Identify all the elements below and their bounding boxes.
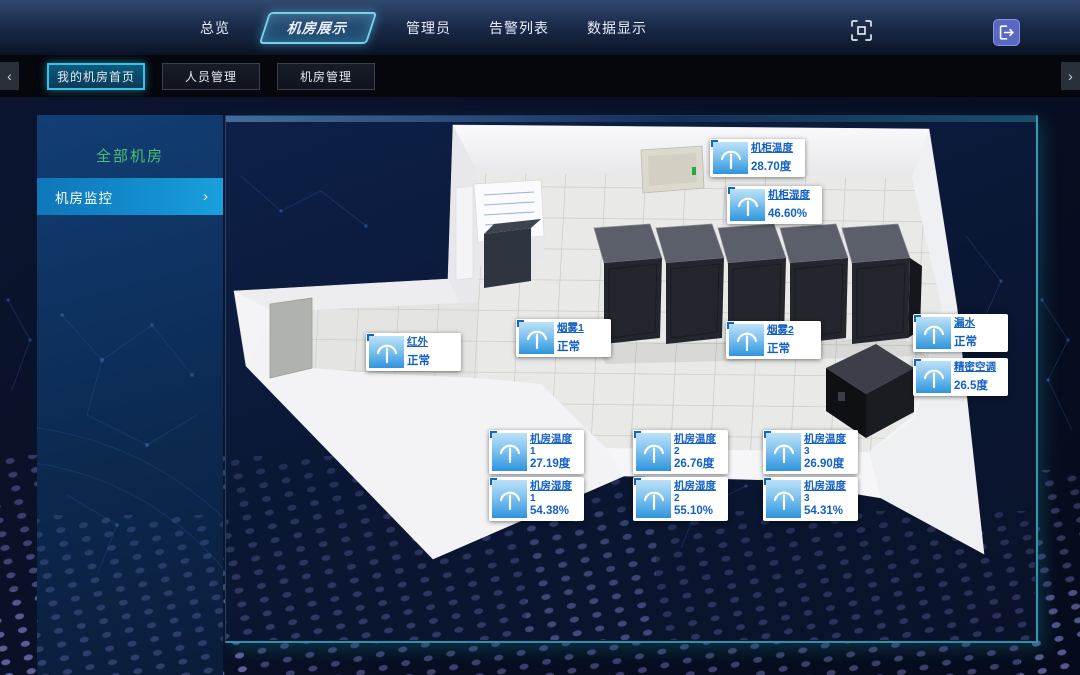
sensor-label-room-temp-3[interactable]: 机房温度 3 26.90度 xyxy=(763,430,858,474)
sensor-value: 26.90度 xyxy=(804,458,856,471)
chevron-right-icon: › xyxy=(203,188,223,205)
sensor-label-room-temp-1[interactable]: 机房温度 1 27.19度 xyxy=(489,430,584,474)
sensor-index: 3 xyxy=(804,447,856,457)
gauge-icon xyxy=(492,433,527,471)
sidebar-title: 全部机房 xyxy=(37,145,223,166)
sensor-title: 精密空调 xyxy=(954,361,1006,373)
sensor-label-cabinet-humidity[interactable]: 机柜湿度 46.60% xyxy=(727,186,822,224)
nav-item-alarm-list[interactable]: 告警列表 xyxy=(485,12,553,44)
network-cabinet xyxy=(456,180,544,288)
sensor-index: 2 xyxy=(674,447,726,457)
sensor-value: 26.5度 xyxy=(954,380,1006,393)
sensor-value: 27.19度 xyxy=(530,458,582,471)
tabs-scroll-left-button[interactable]: ‹ xyxy=(0,62,19,90)
sensor-label-room-temp-2[interactable]: 机房温度 2 26.76度 xyxy=(633,430,728,474)
top-navigation-bar: 总览 机房展示 管理员 告警列表 数据显示 xyxy=(0,0,1080,56)
nav-item-data-display[interactable]: 数据显示 xyxy=(583,12,651,44)
sensor-title: 机房湿度 xyxy=(530,480,582,492)
fullscreen-button[interactable] xyxy=(850,19,873,42)
exit-button[interactable] xyxy=(993,19,1020,46)
gauge-icon xyxy=(916,361,951,393)
fullscreen-icon xyxy=(850,19,873,42)
sensor-value: 55.10% xyxy=(674,505,726,518)
workspace-tab-row: ‹ 我的机房首页 人员管理 机房管理 › xyxy=(0,55,1080,97)
sensor-value: 54.38% xyxy=(530,505,582,518)
sensor-value: 46.60% xyxy=(768,208,820,221)
tab-personnel-management[interactable]: 人员管理 xyxy=(162,63,260,90)
gauge-icon xyxy=(730,189,765,221)
sensor-index: 3 xyxy=(804,494,856,504)
sensor-index: 2 xyxy=(674,494,726,504)
sensor-title: 机柜温度 xyxy=(751,142,803,154)
sensor-title: 漏水 xyxy=(954,317,1006,329)
top-nav-menu: 总览 机房展示 管理员 告警列表 数据显示 xyxy=(196,0,651,55)
sensor-label-precision-ac[interactable]: 精密空调 26.5度 xyxy=(913,358,1008,396)
sensor-title: 烟雾2 xyxy=(767,324,819,336)
gauge-icon xyxy=(713,142,748,174)
sensor-index: 1 xyxy=(530,494,582,504)
gauge-icon xyxy=(636,480,671,518)
room-door xyxy=(270,298,312,378)
sensor-value: 28.70度 xyxy=(751,161,803,174)
tab-my-room-home[interactable]: 我的机房首页 xyxy=(47,63,145,90)
sensor-title: 烟雾1 xyxy=(557,322,609,334)
gauge-icon xyxy=(766,433,801,471)
sensor-index: 1 xyxy=(530,447,582,457)
nav-item-room-display[interactable]: 机房展示 xyxy=(259,12,377,44)
tab-room-management[interactable]: 机房管理 xyxy=(277,63,375,90)
sensor-value: 54.31% xyxy=(804,505,856,518)
sensor-label-room-humidity-2[interactable]: 机房湿度 2 55.10% xyxy=(633,477,728,521)
sensor-title: 红外 xyxy=(407,336,459,348)
sensor-label-smoke-1[interactable]: 烟雾1 正常 xyxy=(516,319,611,357)
gauge-icon xyxy=(519,322,554,354)
gauge-icon xyxy=(369,336,404,368)
sidebar-item-label: 机房监控 xyxy=(37,187,203,207)
sensor-label-room-humidity-1[interactable]: 机房湿度 1 54.38% xyxy=(489,477,584,521)
nav-item-admin[interactable]: 管理员 xyxy=(402,12,455,44)
sensor-value: 正常 xyxy=(557,341,609,354)
gauge-icon xyxy=(729,324,764,356)
gauge-icon xyxy=(916,317,951,349)
sensor-title: 机房湿度 xyxy=(674,480,726,492)
sensor-label-smoke-2[interactable]: 烟雾2 正常 xyxy=(726,321,821,359)
gauge-icon xyxy=(766,480,801,518)
gauge-icon xyxy=(492,480,527,518)
sensor-label-cabinet-temp[interactable]: 机柜温度 28.70度 xyxy=(710,139,805,177)
sensor-value: 正常 xyxy=(407,355,459,368)
sensor-title: 机房温度 xyxy=(674,433,726,445)
sensor-title: 机柜湿度 xyxy=(768,189,820,201)
nav-item-room-display-label: 机房展示 xyxy=(285,20,350,36)
nav-item-overview[interactable]: 总览 xyxy=(196,12,234,44)
sensor-label-infrared[interactable]: 红外 正常 xyxy=(366,333,461,371)
gauge-icon xyxy=(636,433,671,471)
sensor-label-water-leak[interactable]: 漏水 正常 xyxy=(913,314,1008,352)
room-list-sidebar: 全部机房 机房监控 › xyxy=(37,115,223,675)
sensor-title: 机房温度 xyxy=(804,433,856,445)
sensor-value: 正常 xyxy=(767,343,819,356)
tabs-scroll-right-button[interactable]: › xyxy=(1061,62,1080,90)
logout-icon xyxy=(997,23,1016,42)
sensor-label-room-humidity-3[interactable]: 机房湿度 3 54.31% xyxy=(763,477,858,521)
sensor-value: 正常 xyxy=(954,336,1006,349)
sensor-value: 26.76度 xyxy=(674,458,726,471)
sensor-title: 机房湿度 xyxy=(804,480,856,492)
electrical-panel xyxy=(641,146,704,193)
sidebar-item-room-monitoring[interactable]: 机房监控 › xyxy=(37,178,223,215)
sensor-title: 机房温度 xyxy=(530,433,582,445)
